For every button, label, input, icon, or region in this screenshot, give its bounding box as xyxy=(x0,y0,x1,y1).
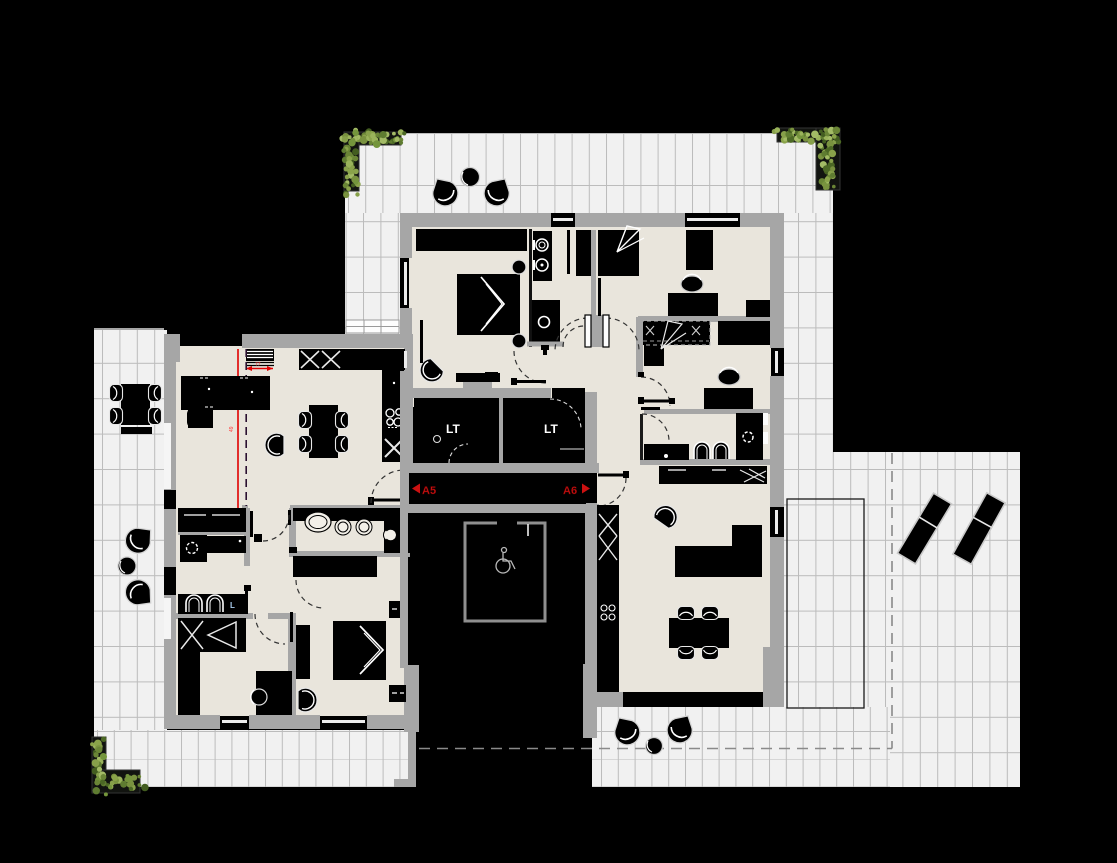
svg-text:77: 77 xyxy=(255,362,261,368)
svg-text:LT: LT xyxy=(544,422,558,436)
svg-text:A6: A6 xyxy=(563,485,577,497)
svg-text:LT: LT xyxy=(446,422,460,436)
svg-text:L: L xyxy=(230,601,235,610)
svg-text:49: 49 xyxy=(229,426,235,432)
svg-text:A5: A5 xyxy=(422,485,436,497)
